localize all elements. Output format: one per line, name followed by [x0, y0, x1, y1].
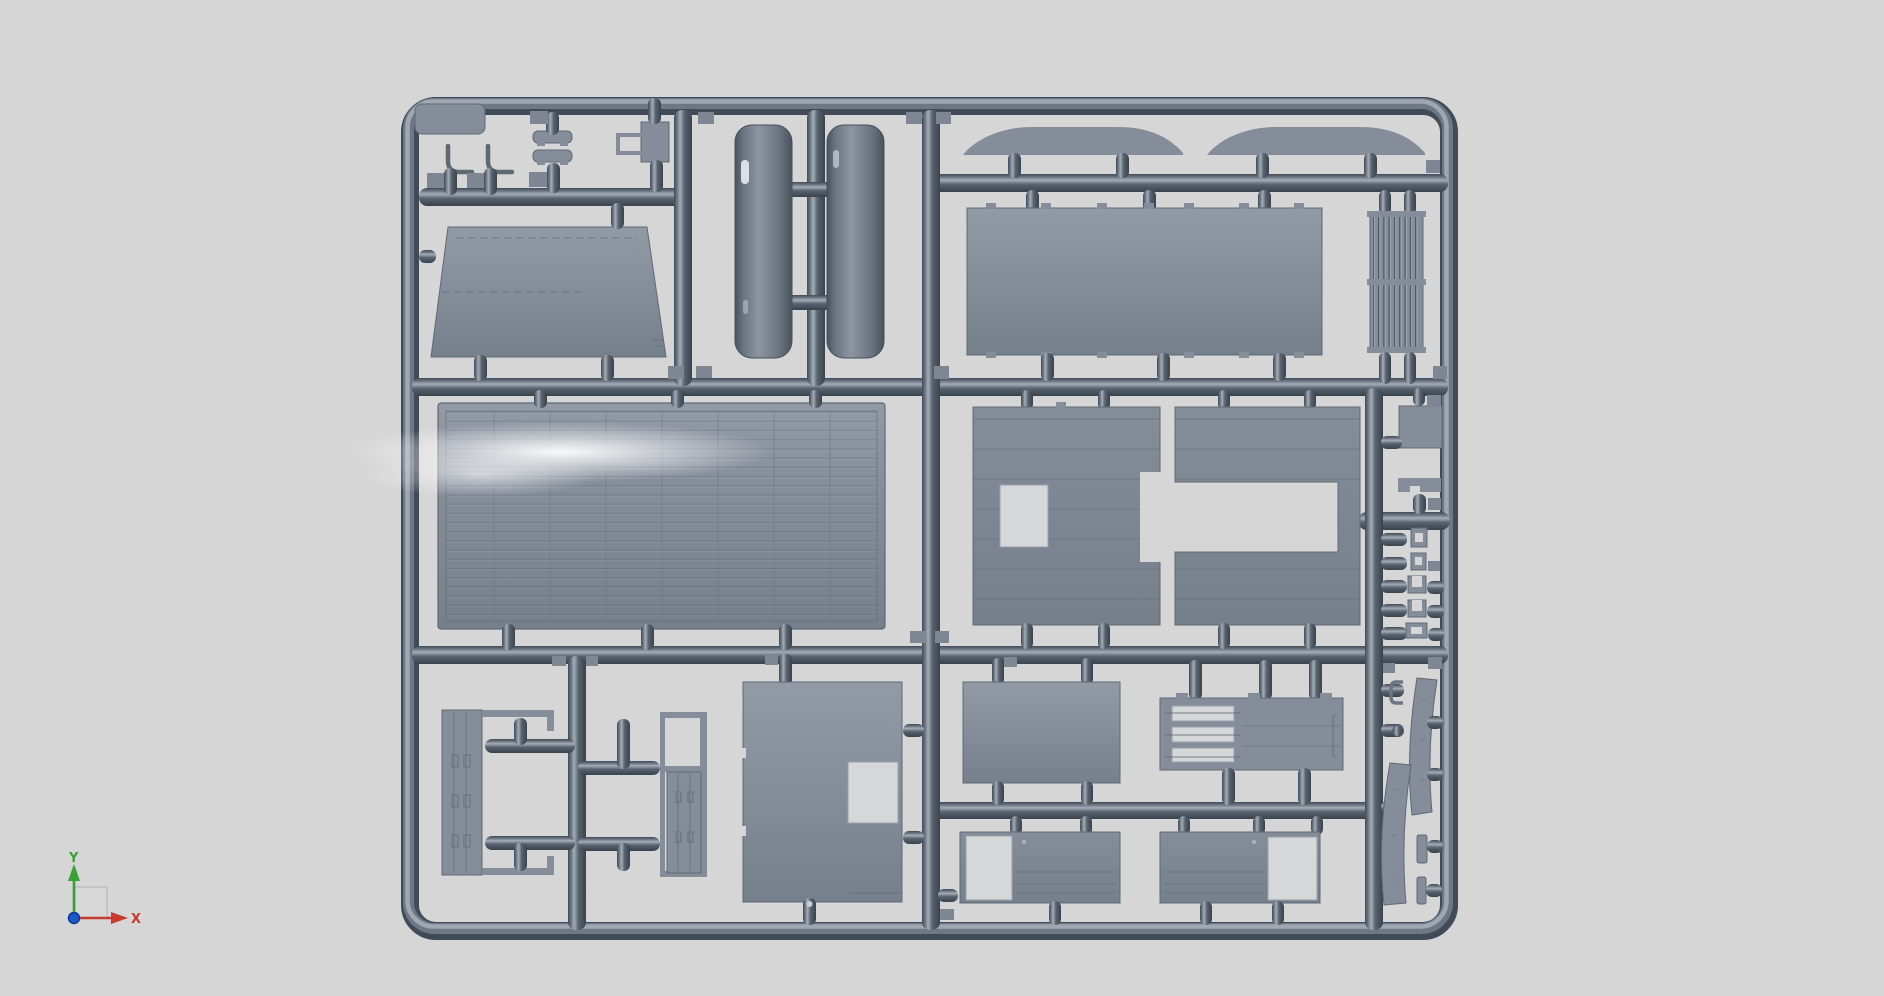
part-u-channel-1[interactable]: [1408, 576, 1426, 593]
gate-tab[interactable]: [1428, 561, 1440, 571]
sprue-stub[interactable]: [903, 724, 924, 737]
grille-cap: [1367, 347, 1426, 353]
part-small-ball[interactable]: [1393, 726, 1404, 737]
part-small-frame[interactable]: [1406, 623, 1427, 638]
sprue-peg[interactable]: [1116, 153, 1129, 178]
gate-tab[interactable]: [668, 366, 684, 379]
edge-notch: [742, 748, 746, 758]
sprue-peg[interactable]: [601, 355, 614, 381]
sprue-peg[interactable]: [534, 390, 547, 408]
sprue-peg[interactable]: [1273, 353, 1286, 381]
part-wall-with-window[interactable]: [973, 402, 1161, 625]
gate-tab[interactable]: [552, 656, 566, 666]
sprue-stub[interactable]: [1427, 768, 1443, 781]
part-fender-left[interactable]: [735, 125, 792, 358]
sprue-stub[interactable]: [1428, 628, 1444, 641]
sprue-peg[interactable]: [1098, 623, 1110, 649]
sprue-peg[interactable]: [1413, 494, 1426, 514]
part-corner-plate[interactable]: [415, 104, 485, 134]
sprue-peg[interactable]: [992, 781, 1004, 805]
sprue-peg[interactable]: [1413, 388, 1425, 406]
gate-tab[interactable]: [765, 655, 778, 665]
part-flat-plate[interactable]: [963, 682, 1120, 783]
runner-vert-fender[interactable]: [807, 110, 825, 386]
gate-tab[interactable]: [906, 112, 922, 124]
wall-planks-texture: [1175, 407, 1360, 482]
rivet-dot: [1252, 840, 1256, 844]
sprue-peg[interactable]: [1259, 660, 1272, 700]
sprue-peg[interactable]: [444, 168, 457, 195]
wall-planks-texture: [1175, 552, 1360, 625]
runner-vert-bottom-left[interactable]: [568, 656, 586, 930]
sprue-stub[interactable]: [1427, 716, 1443, 729]
part-cab-wall-window-left[interactable]: [960, 832, 1120, 903]
runner-vert-left[interactable]: [674, 110, 692, 386]
sprue-peg[interactable]: [474, 355, 487, 381]
sprue-stub[interactable]: [938, 889, 958, 902]
fender-highlight: [833, 150, 839, 168]
sprue-stub[interactable]: [1381, 580, 1407, 593]
gate-tab[interactable]: [1004, 657, 1017, 667]
gate-tab[interactable]: [696, 366, 712, 378]
sprue-stub[interactable]: [1427, 581, 1444, 594]
part-step-ladder-panel[interactable]: [1160, 693, 1343, 770]
part-cab-wall-window-right[interactable]: [1160, 832, 1320, 903]
sprue-peg[interactable]: [484, 168, 497, 195]
sprue-peg[interactable]: [1049, 901, 1061, 925]
window-cutout: [848, 762, 898, 823]
sprue-peg[interactable]: [1222, 768, 1235, 805]
gizmo-plane-square[interactable]: [75, 887, 107, 918]
sprue-peg[interactable]: [617, 719, 630, 769]
sprue-stub[interactable]: [1427, 605, 1444, 618]
sprue-peg[interactable]: [1218, 623, 1230, 649]
sprue-peg[interactable]: [1189, 660, 1202, 700]
sprue-peg[interactable]: [779, 654, 792, 686]
gate-tab[interactable]: [1427, 395, 1441, 407]
gate-tab[interactable]: [910, 631, 926, 643]
part-square-plate[interactable]: [1399, 406, 1442, 448]
sprue-peg[interactable]: [1021, 623, 1033, 649]
part-roof-panel[interactable]: [967, 208, 1322, 355]
part-small-tab-1[interactable]: [1417, 835, 1427, 863]
window-cutout: [1000, 485, 1048, 547]
sprue-peg[interactable]: [1404, 352, 1416, 384]
sprue-peg[interactable]: [617, 843, 630, 871]
edge-notch: [1140, 472, 1161, 562]
gate-tab[interactable]: [586, 656, 598, 666]
cell-trapezoid-panel[interactable]: [431, 203, 684, 381]
sprue-peg[interactable]: [1364, 153, 1377, 178]
sprue-peg[interactable]: [1200, 901, 1212, 925]
part-u-channel-2[interactable]: [1408, 600, 1426, 617]
gate-tab[interactable]: [940, 909, 954, 920]
gate-tab[interactable]: [1383, 663, 1395, 673]
gate-tab[interactable]: [1433, 366, 1447, 379]
viewport-background: [0, 0, 1884, 996]
sprue-peg[interactable]: [1272, 901, 1284, 925]
fender-highlight: [743, 300, 748, 314]
sprue-peg[interactable]: [671, 390, 684, 408]
sprue-stub[interactable]: [1381, 604, 1407, 617]
panel-edge-tab: [1248, 693, 1260, 699]
stub-left-frame[interactable]: [419, 250, 436, 263]
sprue-peg[interactable]: [1041, 353, 1054, 381]
panel-edge-tab: [1056, 402, 1066, 408]
sprue-peg[interactable]: [1379, 352, 1391, 384]
sprue-stub[interactable]: [1427, 840, 1443, 853]
specular-highlight: [360, 453, 600, 497]
part-small-square-2[interactable]: [1411, 553, 1426, 570]
gate-tab[interactable]: [427, 173, 444, 188]
sprue-stub[interactable]: [1426, 884, 1442, 897]
rivet-dot: [1022, 840, 1026, 844]
branch-arm[interactable]: [485, 739, 575, 753]
sprue-peg[interactable]: [1256, 153, 1269, 178]
cell-roof-panel[interactable]: [967, 190, 1322, 381]
sprue-peg[interactable]: [1081, 658, 1093, 685]
sprue-peg[interactable]: [1298, 768, 1311, 805]
gate-tab[interactable]: [1428, 498, 1441, 510]
sprue-peg[interactable]: [547, 163, 560, 193]
window-cutout: [966, 836, 1012, 900]
sprue-peg[interactable]: [502, 624, 515, 650]
sprue-peg[interactable]: [1304, 623, 1316, 649]
runner-bottom-right-divider[interactable]: [928, 802, 1378, 819]
window-cutout: [1268, 837, 1317, 900]
sprue-peg[interactable]: [641, 624, 654, 650]
sprue-peg[interactable]: [514, 843, 527, 871]
x-axis-label: X: [131, 912, 141, 927]
sprue-stub[interactable]: [1381, 533, 1407, 546]
grille-cap: [1367, 211, 1426, 217]
y-axis-label: Y: [68, 851, 79, 866]
panel-edge-tab: [1320, 693, 1332, 699]
origin-z-axis-dot[interactable]: [69, 913, 80, 924]
sprue-stub[interactable]: [1381, 627, 1407, 640]
gate-tab[interactable]: [935, 631, 949, 643]
cad-viewport[interactable]: Y X: [0, 0, 1884, 996]
peg-highlight: [807, 901, 813, 907]
gate-tab[interactable]: [1428, 657, 1442, 669]
edge-notch: [742, 826, 746, 836]
sprue-peg[interactable]: [779, 624, 792, 650]
sprue-peg[interactable]: [992, 658, 1004, 685]
gate-tab[interactable]: [530, 111, 548, 124]
sprue-peg[interactable]: [611, 203, 624, 229]
gate-tab[interactable]: [698, 112, 714, 124]
gate-tab[interactable]: [467, 173, 484, 188]
sprue-stub[interactable]: [903, 831, 924, 844]
sprue-peg[interactable]: [1081, 781, 1093, 805]
cell-door-panel[interactable]: [742, 654, 924, 925]
runner-vert-right-column[interactable]: [1365, 388, 1383, 930]
gate-tab[interactable]: [529, 172, 547, 187]
grille-rail: [1367, 279, 1426, 285]
sprue-peg[interactable]: [514, 718, 527, 745]
ladder-gap: [1172, 748, 1234, 762]
runner-vert-center[interactable]: [922, 110, 940, 930]
sprue-stub[interactable]: [1381, 557, 1407, 570]
sprue-peg[interactable]: [648, 98, 661, 124]
sprue-peg[interactable]: [1008, 153, 1021, 178]
gate-tab[interactable]: [934, 366, 949, 379]
gate-tab[interactable]: [1426, 160, 1440, 173]
gate-tab[interactable]: [936, 112, 951, 124]
sprue-peg[interactable]: [1157, 353, 1170, 381]
part-small-tab-2[interactable]: [1417, 877, 1426, 904]
panel-edge-tab: [1176, 693, 1188, 699]
part-small-square-1[interactable]: [1411, 528, 1427, 547]
fender-highlight: [741, 160, 749, 184]
branch-arm[interactable]: [485, 836, 575, 850]
sprue-peg[interactable]: [809, 390, 822, 408]
sprue-peg[interactable]: [650, 160, 663, 192]
sprue-stub[interactable]: [1381, 436, 1402, 449]
